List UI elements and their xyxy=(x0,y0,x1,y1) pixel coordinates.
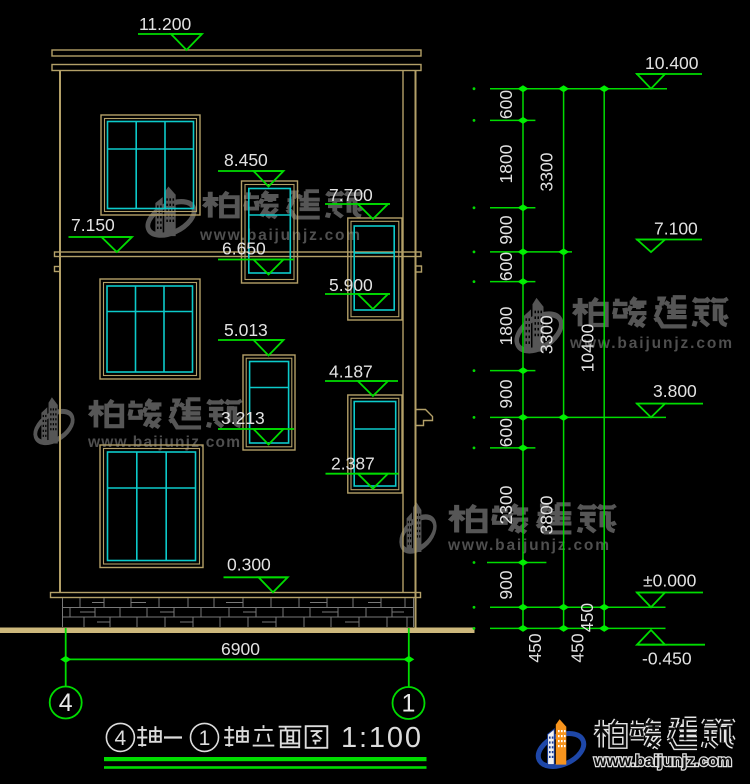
svg-text:±0.000: ±0.000 xyxy=(643,571,697,591)
svg-text:7.100: 7.100 xyxy=(654,219,698,239)
svg-text:1: 1 xyxy=(199,727,211,750)
svg-text:900: 900 xyxy=(496,570,516,599)
svg-text:6900: 6900 xyxy=(221,639,260,659)
svg-text:900: 900 xyxy=(496,215,516,244)
svg-text:450: 450 xyxy=(577,603,597,632)
svg-text:5.013: 5.013 xyxy=(224,320,268,340)
svg-text:10.400: 10.400 xyxy=(645,53,699,73)
svg-text:600: 600 xyxy=(496,252,516,281)
svg-text:450: 450 xyxy=(525,633,545,662)
svg-text:1:100: 1:100 xyxy=(341,722,421,754)
svg-text:8.450: 8.450 xyxy=(224,150,268,170)
svg-text:4.187: 4.187 xyxy=(329,362,373,382)
svg-text:3.800: 3.800 xyxy=(653,381,697,401)
svg-text:600: 600 xyxy=(496,418,516,447)
svg-text:5.900: 5.900 xyxy=(329,275,373,295)
svg-text:6.650: 6.650 xyxy=(222,239,266,259)
svg-text:7.150: 7.150 xyxy=(71,215,115,235)
svg-text:3300: 3300 xyxy=(537,315,557,354)
svg-text:www.baijunjz.com: www.baijunjz.com xyxy=(447,537,609,554)
svg-text:0.300: 0.300 xyxy=(227,555,271,575)
svg-text:10400: 10400 xyxy=(578,323,598,372)
svg-text:4: 4 xyxy=(59,689,73,717)
svg-text:900: 900 xyxy=(496,379,516,408)
svg-text:600: 600 xyxy=(496,90,516,119)
svg-text:2.387: 2.387 xyxy=(331,454,375,474)
svg-text:www.baijunjz.com: www.baijunjz.com xyxy=(593,753,732,770)
svg-text:7.700: 7.700 xyxy=(329,185,373,205)
svg-text:3300: 3300 xyxy=(537,152,557,191)
svg-text:1: 1 xyxy=(402,690,416,718)
svg-text:11.200: 11.200 xyxy=(139,14,191,34)
svg-text:4: 4 xyxy=(115,727,127,750)
svg-text:3.213: 3.213 xyxy=(221,408,265,428)
svg-text:1800: 1800 xyxy=(496,306,516,345)
svg-text:-0.450: -0.450 xyxy=(642,649,692,669)
svg-text:1800: 1800 xyxy=(496,144,516,183)
svg-text:450: 450 xyxy=(568,633,588,662)
svg-text:2300: 2300 xyxy=(496,485,516,524)
svg-text:3800: 3800 xyxy=(537,495,557,534)
